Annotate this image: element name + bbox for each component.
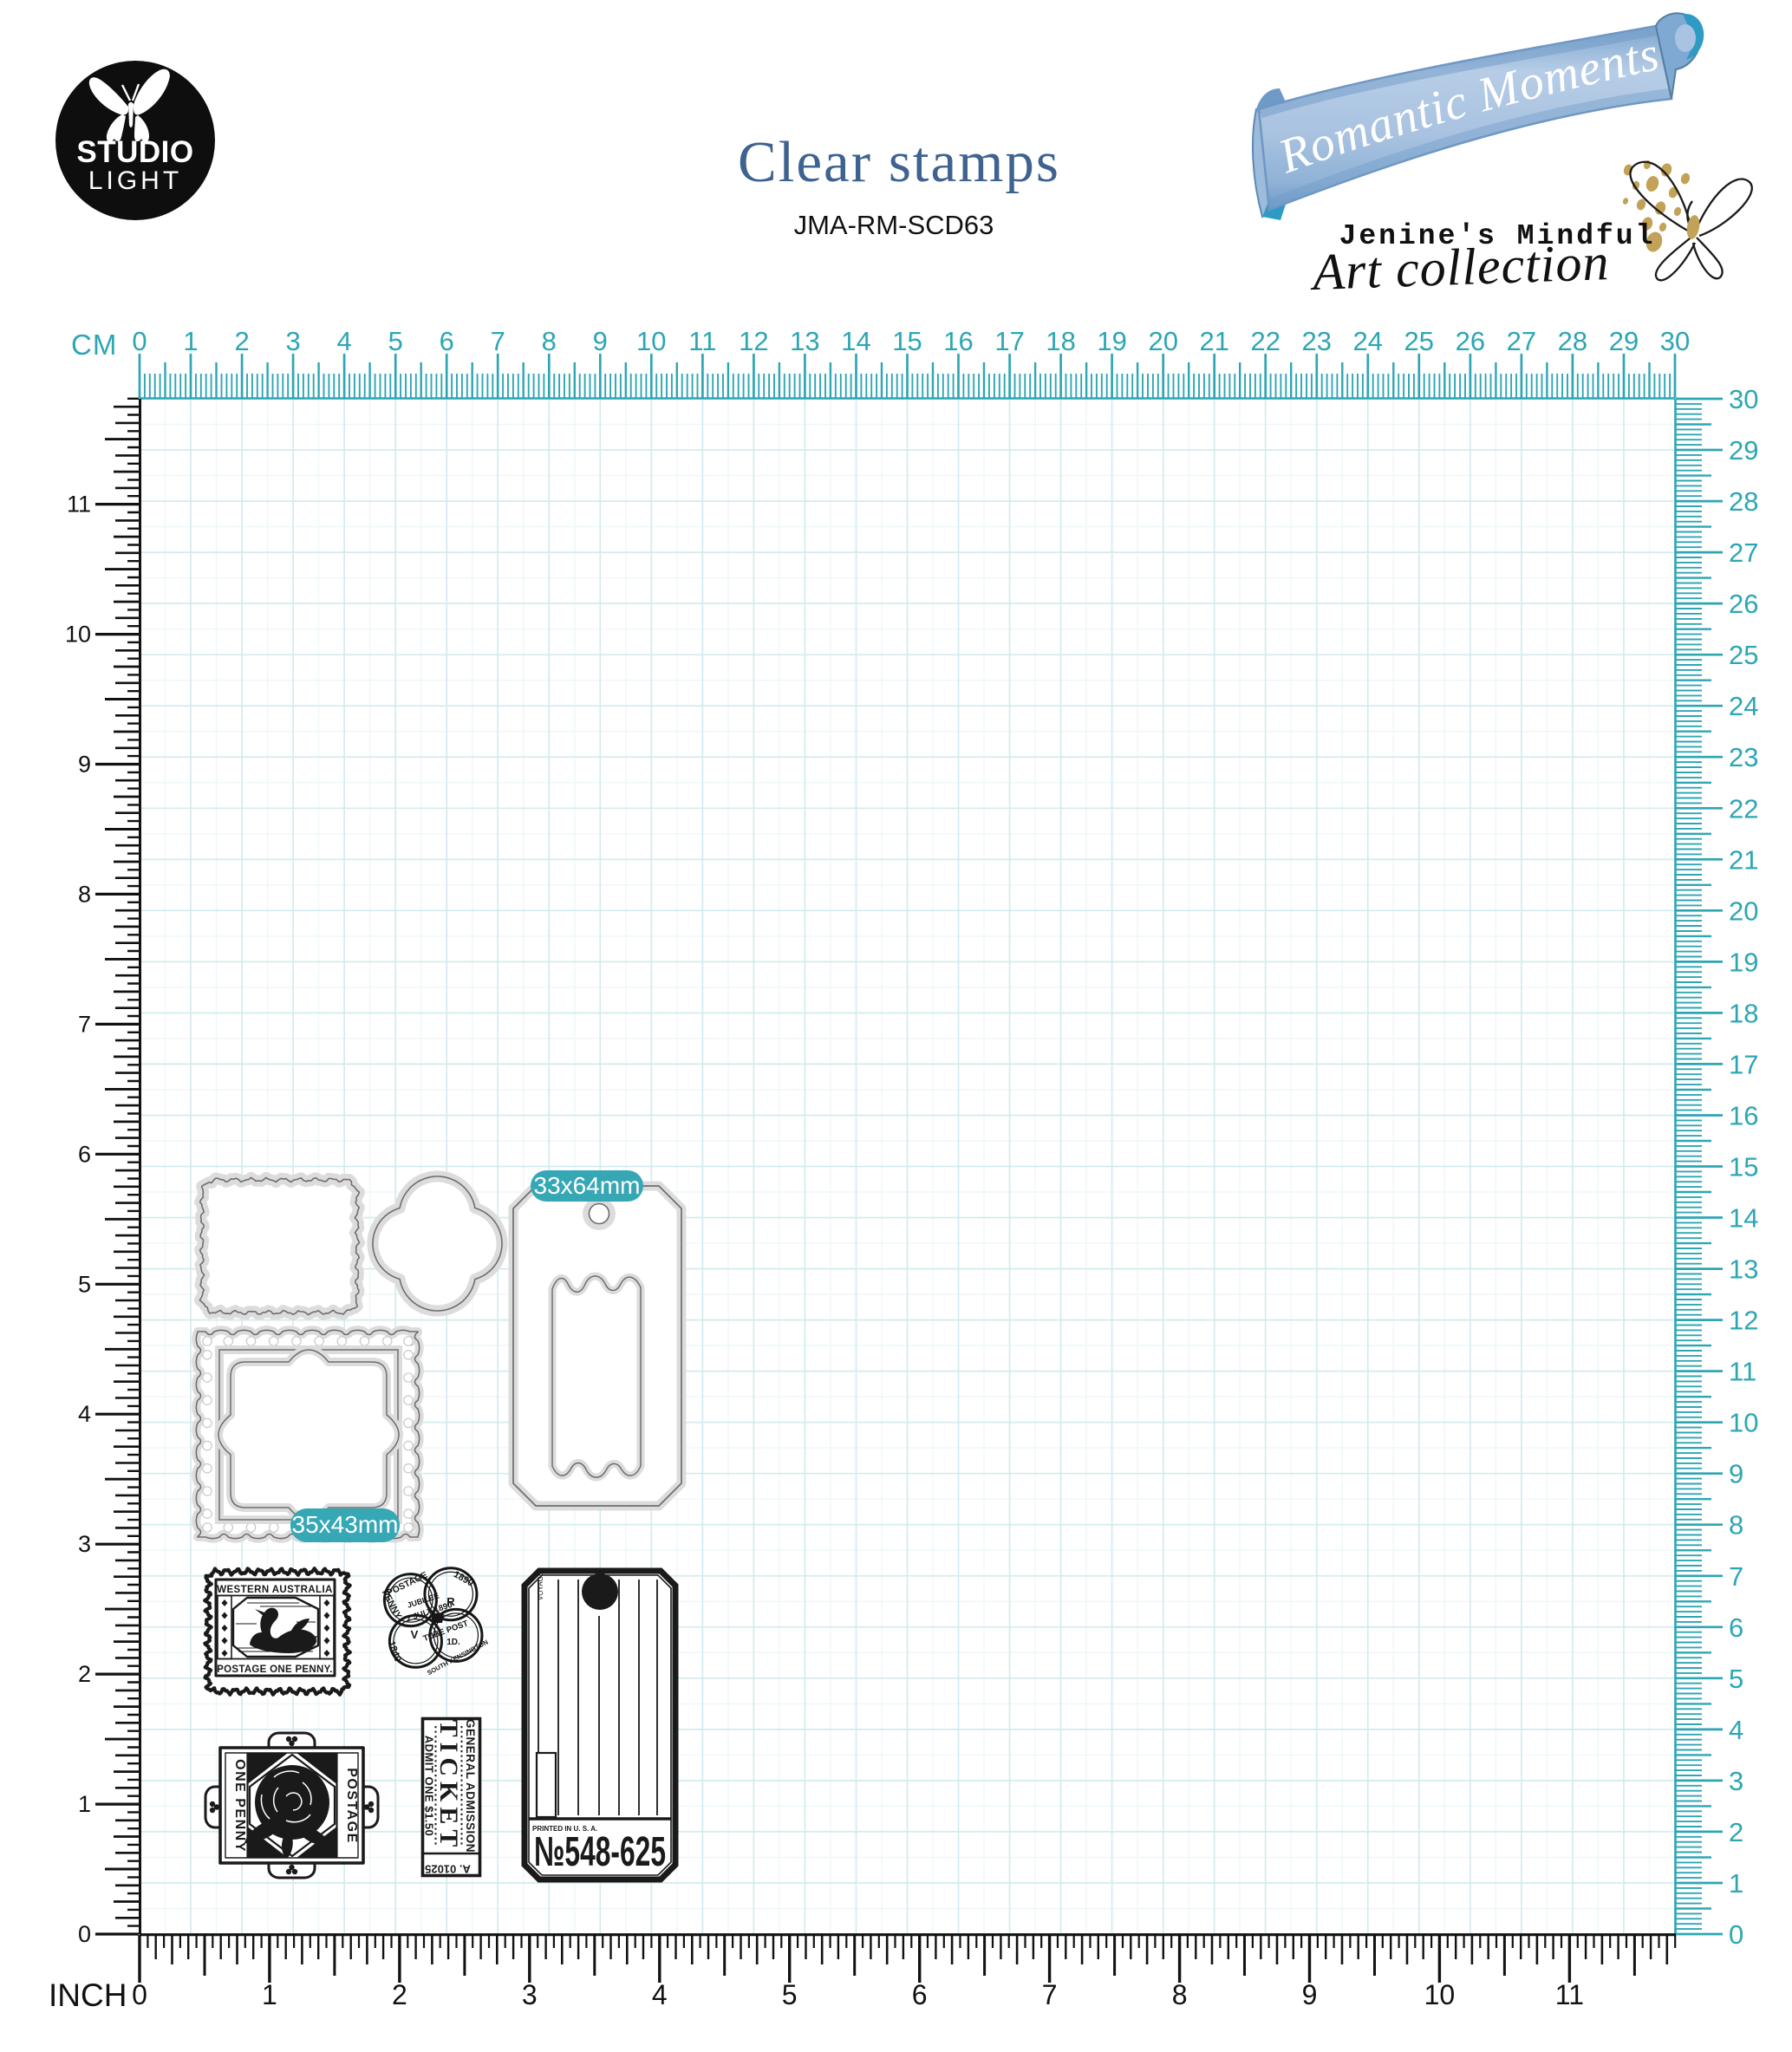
svg-text:28: 28: [1729, 486, 1758, 517]
svg-text:1D.: 1D.: [446, 1638, 460, 1647]
svg-text:7: 7: [491, 326, 505, 356]
svg-text:10: 10: [65, 622, 91, 648]
svg-text:12: 12: [1729, 1306, 1758, 1336]
svg-text:8: 8: [542, 326, 557, 356]
svg-text:7: 7: [78, 1011, 91, 1037]
svg-text:6: 6: [1729, 1612, 1743, 1643]
svg-text:5: 5: [1729, 1664, 1743, 1694]
svg-text:STUDIO: STUDIO: [76, 135, 193, 169]
svg-text:ADMIT ONE $1.50: ADMIT ONE $1.50: [423, 1736, 436, 1837]
svg-text:1: 1: [183, 326, 198, 356]
svg-text:24: 24: [1729, 691, 1758, 721]
svg-text:7: 7: [1729, 1561, 1743, 1592]
svg-text:POSTAGE: POSTAGE: [344, 1768, 359, 1844]
svg-text:5: 5: [388, 326, 403, 356]
svg-text:9: 9: [1729, 1459, 1743, 1489]
svg-text:22: 22: [1729, 793, 1758, 824]
svg-text:14: 14: [841, 326, 870, 356]
svg-text:0: 0: [1729, 1919, 1743, 1950]
svg-text:15: 15: [1729, 1152, 1758, 1182]
svg-text:13: 13: [790, 326, 819, 356]
svg-text:4: 4: [78, 1401, 91, 1427]
svg-text:0: 0: [132, 1979, 147, 2010]
svg-text:4: 4: [652, 1979, 668, 2010]
svg-text:INCH: INCH: [49, 1977, 127, 2013]
svg-text:18: 18: [1046, 326, 1075, 356]
svg-text:27: 27: [1729, 537, 1758, 568]
svg-text:2: 2: [78, 1661, 91, 1687]
svg-text:8: 8: [1729, 1510, 1743, 1541]
svg-text:35x43mm: 35x43mm: [292, 1511, 399, 1538]
svg-text:№548-625: №548-625: [534, 1829, 666, 1875]
svg-text:13: 13: [1729, 1254, 1758, 1285]
svg-text:29: 29: [1729, 435, 1758, 466]
svg-text:11: 11: [1555, 1979, 1584, 2010]
svg-text:21: 21: [1199, 326, 1228, 356]
svg-text:8: 8: [1172, 1979, 1188, 2010]
svg-text:ONE PENNY: ONE PENNY: [232, 1759, 247, 1853]
svg-text:POSTAGE ONE PENNY.: POSTAGE ONE PENNY.: [217, 1664, 333, 1675]
svg-text:9: 9: [593, 326, 608, 356]
svg-text:20: 20: [1729, 896, 1758, 926]
svg-text:14: 14: [1729, 1203, 1758, 1234]
svg-text:6: 6: [912, 1979, 928, 2010]
svg-text:0: 0: [132, 326, 147, 356]
svg-text:3: 3: [78, 1531, 91, 1557]
svg-text:TICKET: TICKET: [434, 1720, 463, 1853]
svg-text:1: 1: [78, 1791, 91, 1817]
svg-text:28: 28: [1558, 326, 1587, 356]
svg-text:2: 2: [234, 326, 249, 356]
svg-text:2: 2: [1729, 1817, 1743, 1847]
svg-text:A. 01025: A. 01025: [425, 1863, 471, 1876]
svg-text:11: 11: [688, 326, 716, 356]
svg-text:GENERAL ADMISSION: GENERAL ADMISSION: [464, 1719, 477, 1853]
svg-text:10: 10: [1729, 1408, 1758, 1438]
svg-text:VOYAGE: VOYAGE: [537, 1572, 544, 1600]
svg-text:2: 2: [392, 1979, 407, 2010]
svg-text:4: 4: [1729, 1715, 1743, 1745]
svg-text:Art collection: Art collection: [1308, 233, 1610, 301]
svg-text:16: 16: [1729, 1101, 1758, 1131]
svg-text:25: 25: [1729, 640, 1758, 670]
svg-text:23: 23: [1302, 326, 1332, 356]
svg-text:5: 5: [782, 1979, 798, 2010]
svg-text:17: 17: [994, 326, 1024, 356]
svg-text:V: V: [411, 1628, 419, 1641]
svg-text:27: 27: [1507, 326, 1536, 356]
svg-text:3: 3: [522, 1979, 538, 2010]
svg-text:6: 6: [440, 326, 454, 356]
svg-text:JMA-RM-SCD63: JMA-RM-SCD63: [794, 210, 994, 240]
svg-text:23: 23: [1729, 742, 1758, 772]
svg-text:7: 7: [1042, 1979, 1058, 2010]
svg-text:29: 29: [1609, 326, 1639, 356]
svg-text:0: 0: [78, 1921, 91, 1947]
svg-text:6: 6: [78, 1141, 91, 1167]
svg-text:26: 26: [1456, 326, 1485, 356]
svg-text:18: 18: [1729, 998, 1758, 1028]
svg-text:26: 26: [1729, 589, 1758, 619]
svg-text:10: 10: [636, 326, 666, 356]
svg-text:8: 8: [78, 881, 91, 907]
svg-text:Clear stamps: Clear stamps: [738, 130, 1060, 194]
svg-text:WESTERN AUSTRALIA: WESTERN AUSTRALIA: [217, 1585, 333, 1595]
svg-text:10: 10: [1424, 1979, 1456, 2010]
svg-text:1: 1: [1729, 1868, 1743, 1899]
svg-text:19: 19: [1729, 947, 1758, 977]
svg-text:4: 4: [336, 326, 351, 356]
svg-text:22: 22: [1250, 326, 1280, 356]
svg-text:3: 3: [285, 326, 300, 356]
svg-text:CM: CM: [71, 329, 117, 361]
svg-text:9: 9: [78, 752, 91, 778]
svg-text:11: 11: [1729, 1357, 1756, 1387]
svg-text:24: 24: [1353, 326, 1383, 356]
svg-text:15: 15: [892, 326, 922, 356]
svg-text:33x64mm: 33x64mm: [534, 1172, 641, 1199]
svg-text:11: 11: [67, 492, 91, 518]
svg-text:9: 9: [1302, 1979, 1318, 2010]
svg-text:LIGHT: LIGHT: [88, 166, 182, 195]
svg-text:16: 16: [943, 326, 973, 356]
svg-text:3: 3: [1729, 1766, 1743, 1796]
svg-text:R: R: [446, 1595, 455, 1608]
svg-text:17: 17: [1729, 1049, 1758, 1079]
svg-text:25: 25: [1404, 326, 1434, 356]
svg-text:30: 30: [1660, 326, 1690, 356]
svg-text:30: 30: [1729, 384, 1758, 414]
svg-text:20: 20: [1148, 326, 1177, 356]
svg-text:5: 5: [78, 1271, 91, 1297]
svg-text:12: 12: [739, 326, 768, 356]
svg-text:1: 1: [262, 1979, 277, 2010]
svg-text:19: 19: [1097, 326, 1126, 356]
svg-text:21: 21: [1729, 844, 1758, 875]
